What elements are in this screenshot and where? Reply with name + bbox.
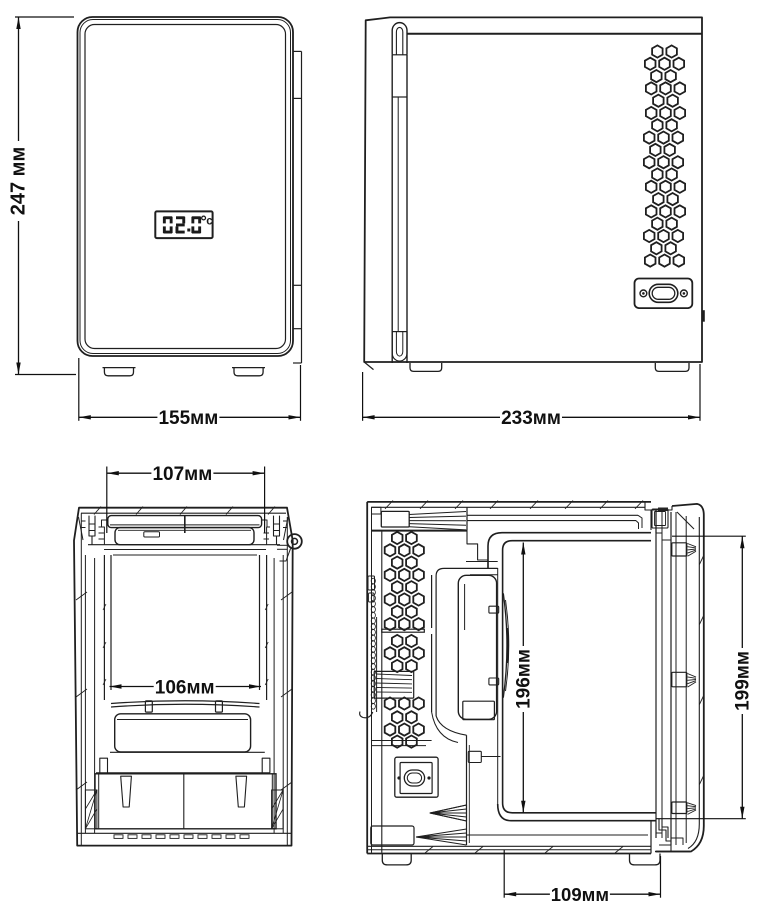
svg-text:199мм: 199мм [732, 651, 753, 711]
svg-text:233мм: 233мм [501, 408, 561, 429]
svg-text:c: c [206, 216, 213, 228]
svg-text:247 мм: 247 мм [8, 147, 30, 216]
svg-text:107мм: 107мм [152, 464, 212, 485]
svg-text:155мм: 155мм [158, 408, 218, 429]
svg-text:106мм: 106мм [155, 677, 215, 698]
svg-text:196мм: 196мм [513, 649, 534, 709]
svg-text:109мм: 109мм [551, 884, 609, 905]
